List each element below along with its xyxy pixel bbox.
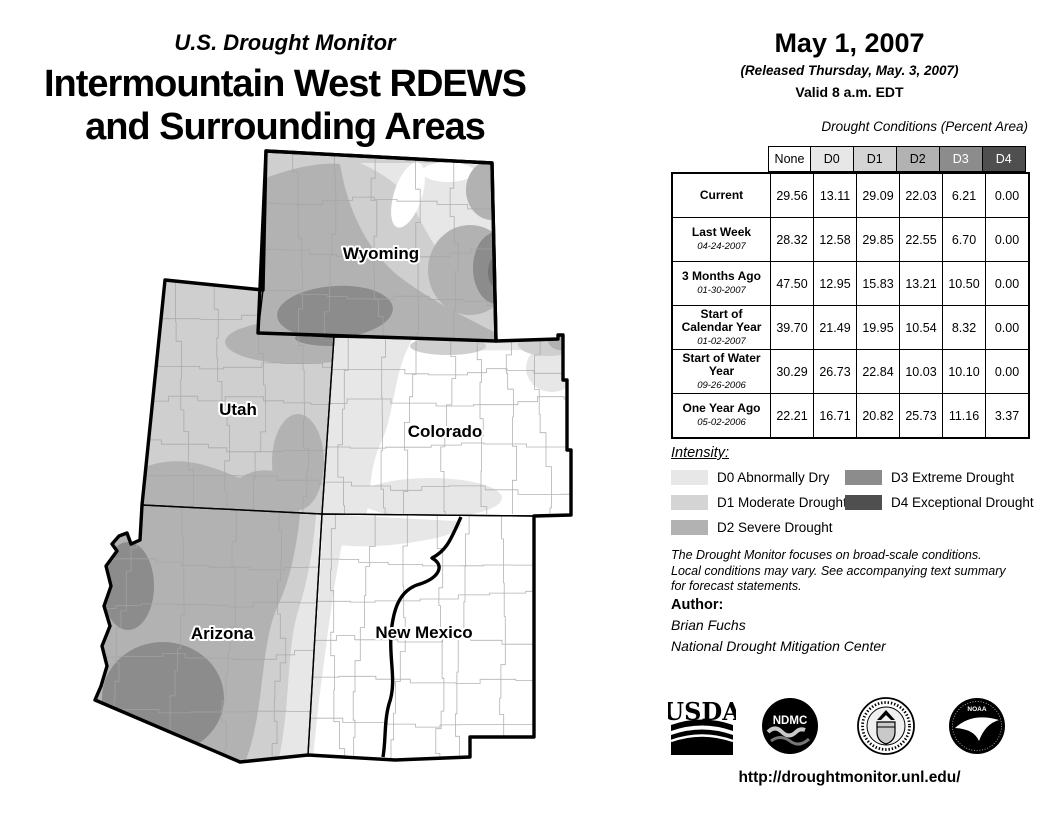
d0-swatch	[671, 470, 708, 485]
column-header-d3: D3	[939, 146, 984, 172]
table-cell: 22.55	[899, 218, 942, 261]
release-date: (Released Thursday, May. 3, 2007)	[671, 63, 1028, 78]
table-cell: 3.37	[985, 394, 1028, 437]
table-row: Current 29.56 13.11 29.09 22.03 6.21 0.0…	[673, 174, 1028, 217]
table-header-row: None D0 D1 D2 D3 D4	[768, 146, 1026, 172]
table-cell: 10.50	[942, 262, 985, 305]
table-cell: 6.70	[942, 218, 985, 261]
table-cell: 29.09	[856, 174, 899, 217]
table-cell: 25.73	[899, 394, 942, 437]
table-cell: 10.03	[899, 350, 942, 393]
table-cell: 10.10	[942, 350, 985, 393]
table-cell: 12.58	[813, 218, 856, 261]
region-title-line1: Intermountain West RDEWS	[0, 63, 570, 106]
table-row: Start of Water Year 09-26-2006 30.29 26.…	[673, 349, 1028, 393]
table-cell: 0.00	[985, 306, 1028, 349]
legend-item-d3: D3 Extreme Drought	[845, 469, 1014, 485]
row-label: Start of Water Year 09-26-2006	[673, 350, 770, 393]
intensity-legend: D0 Abnormally Dry D1 Moderate Drought D2…	[671, 469, 1031, 547]
d1-swatch	[671, 495, 708, 510]
table-cell: 22.21	[770, 394, 813, 437]
intensity-heading: Intensity:	[671, 445, 729, 461]
table-cell: 12.95	[813, 262, 856, 305]
column-header-d4: D4	[982, 146, 1027, 172]
table-cell: 28.32	[770, 218, 813, 261]
row-label: Start of Calendar Year 01-02-2007	[673, 306, 770, 349]
map-date: May 1, 2007	[671, 28, 1028, 59]
legend-item-d2: D2 Severe Drought	[671, 519, 833, 535]
state-label-utah: Utah	[219, 400, 257, 419]
svg-text:NOAA: NOAA	[967, 706, 986, 713]
table-cell: 22.03	[899, 174, 942, 217]
column-header-d0: D0	[810, 146, 855, 172]
table-cell: 15.83	[856, 262, 899, 305]
noaa-logo: NOAA	[947, 696, 1007, 756]
table-cell: 20.82	[856, 394, 899, 437]
d3-swatch	[845, 470, 882, 485]
d4-swatch	[845, 495, 882, 510]
table-row: 3 Months Ago 01-30-2007 47.50 12.95 15.8…	[673, 261, 1028, 305]
table-cell: 0.00	[985, 350, 1028, 393]
state-label-wyoming: Wyoming	[343, 244, 419, 263]
table-cell: 29.56	[770, 174, 813, 217]
valid-time: Valid 8 a.m. EDT	[671, 84, 1028, 100]
table-cell: 0.00	[985, 174, 1028, 217]
legend-item-d4: D4 Exceptional Drought	[845, 494, 1034, 510]
website-url: http://droughtmonitor.unl.edu/	[671, 769, 1028, 787]
d2-swatch	[671, 520, 708, 535]
row-label: Current	[673, 174, 770, 217]
author-heading: Author:	[671, 597, 723, 613]
row-label: 3 Months Ago 01-30-2007	[673, 262, 770, 305]
legend-item-d1: D1 Moderate Drought	[671, 494, 847, 510]
author-organization: National Drought Mitigation Center	[671, 638, 886, 654]
table-cell: 16.71	[813, 394, 856, 437]
table-cell: 8.32	[942, 306, 985, 349]
table-cell: 13.21	[899, 262, 942, 305]
table-body: Current 29.56 13.11 29.09 22.03 6.21 0.0…	[671, 172, 1030, 439]
ndmc-logo: NDMC	[760, 696, 820, 756]
disclaimer-text: The Drought Monitor focuses on broad-sca…	[671, 548, 1006, 595]
usda-logo: USDA	[668, 700, 736, 758]
table-cell: 26.73	[813, 350, 856, 393]
legend-item-d0: D0 Abnormally Dry	[671, 469, 830, 485]
table-row: Last Week 04-24-2007 28.32 12.58 29.85 2…	[673, 217, 1028, 261]
table-row: One Year Ago 05-02-2006 22.21 16.71 20.8…	[673, 393, 1028, 437]
state-label-new-mexico: New Mexico	[375, 623, 472, 642]
drought-shading	[95, 151, 584, 762]
monitor-title: U.S. Drought Monitor	[0, 30, 570, 56]
table-cell: 47.50	[770, 262, 813, 305]
table-cell: 0.00	[985, 218, 1028, 261]
state-label-colorado: Colorado	[408, 422, 483, 441]
table-cell: 6.21	[942, 174, 985, 217]
table-row: Start of Calendar Year 01-02-2007 39.70 …	[673, 305, 1028, 349]
table-cell: 0.00	[985, 262, 1028, 305]
row-label: Last Week 04-24-2007	[673, 218, 770, 261]
table-cell: 13.11	[813, 174, 856, 217]
table-cell: 19.95	[856, 306, 899, 349]
drought-conditions-table: None D0 D1 D2 D3 D4 Current 29.56 13.11 …	[671, 146, 1030, 439]
table-cell: 21.49	[813, 306, 856, 349]
state-label-arizona: Arizona	[191, 624, 254, 643]
table-cell: 30.29	[770, 350, 813, 393]
table-cell: 29.85	[856, 218, 899, 261]
column-header-d2: D2	[896, 146, 941, 172]
table-cell: 22.84	[856, 350, 899, 393]
region-title-line2: and Surrounding Areas	[0, 106, 570, 149]
table-cell: 10.54	[899, 306, 942, 349]
table-caption: Drought Conditions (Percent Area)	[671, 119, 1028, 134]
author-name: Brian Fuchs	[671, 617, 746, 633]
column-header-none: None	[768, 146, 811, 172]
svg-text:NDMC: NDMC	[773, 715, 808, 727]
table-cell: 39.70	[770, 306, 813, 349]
commerce-seal-logo	[856, 696, 916, 756]
column-header-d1: D1	[853, 146, 898, 172]
table-cell: 11.16	[942, 394, 985, 437]
row-label: One Year Ago 05-02-2006	[673, 394, 770, 437]
